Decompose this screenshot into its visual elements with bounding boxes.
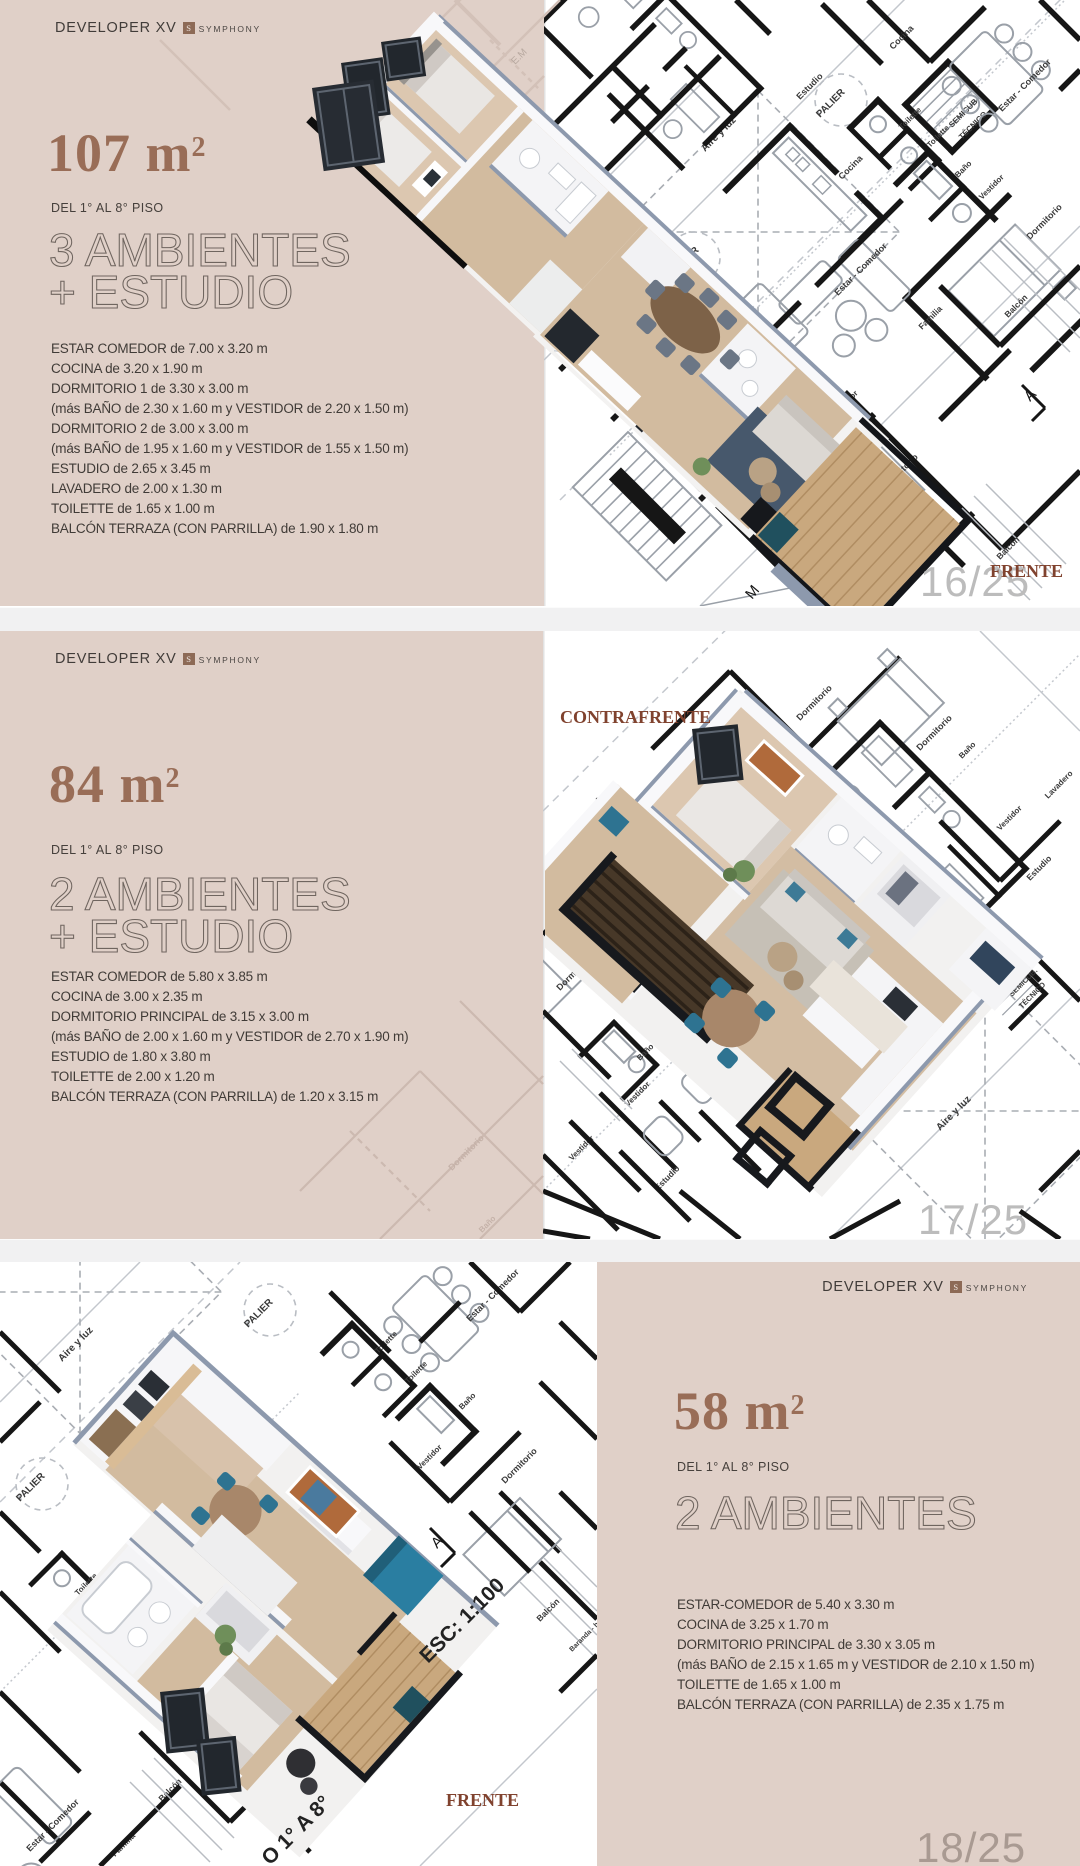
svg-text:E.M: E.M <box>509 47 529 67</box>
svg-text:Dormitorio: Dormitorio <box>446 1132 486 1172</box>
